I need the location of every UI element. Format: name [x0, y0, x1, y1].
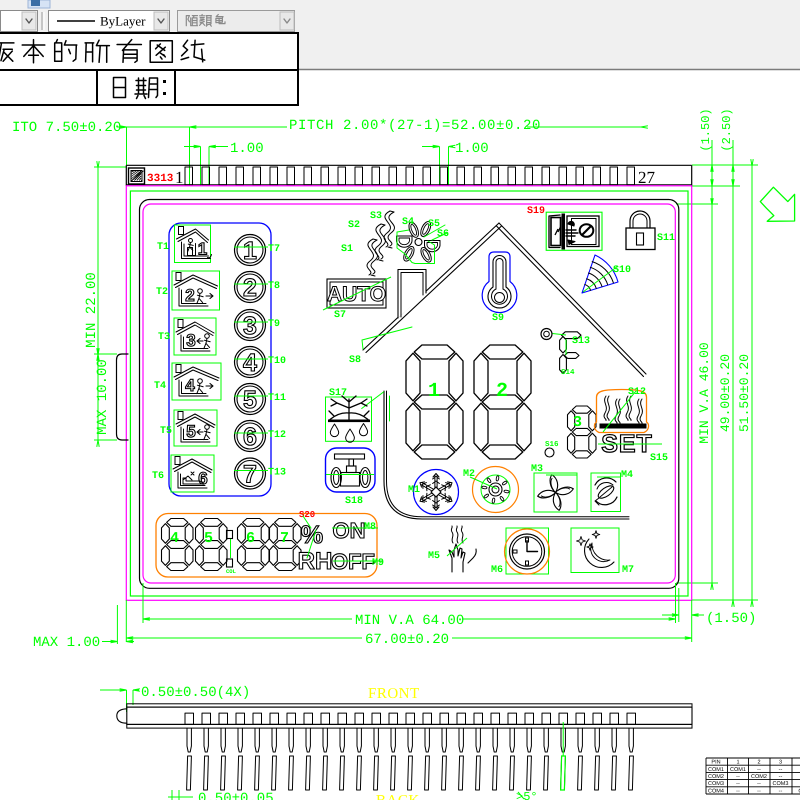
svg-text:S16: S16 [545, 440, 559, 449]
svg-text:51.50±0.20: 51.50±0.20 [737, 354, 752, 432]
svg-text:6: 6 [198, 469, 207, 488]
svg-text:ITO 7.50±0.20: ITO 7.50±0.20 [12, 120, 121, 136]
svg-text:6: 6 [243, 423, 257, 451]
svg-text:COM2: COM2 [708, 774, 724, 780]
svg-text:MIN V.A 64.00: MIN V.A 64.00 [355, 613, 464, 629]
svg-text:S1: S1 [341, 244, 353, 255]
svg-text:--: -- [779, 788, 783, 794]
svg-text:COM2: COM2 [751, 774, 767, 780]
svg-text:S15: S15 [650, 453, 668, 464]
svg-text:1: 1 [428, 380, 440, 403]
svg-text:S12: S12 [628, 387, 646, 398]
svg-text:3: 3 [573, 414, 582, 431]
svg-text:5: 5 [204, 530, 213, 547]
svg-text:4: 4 [243, 349, 257, 377]
svg-text:S19: S19 [527, 206, 545, 217]
svg-text:T2: T2 [156, 287, 168, 298]
svg-text:(2.50): (2.50) [720, 108, 734, 151]
svg-text:S2: S2 [348, 220, 360, 231]
svg-text:T11: T11 [268, 393, 286, 404]
svg-text:T13: T13 [268, 468, 286, 479]
svg-text:--: -- [736, 788, 740, 794]
svg-text:3313: 3313 [147, 173, 174, 185]
svg-text:RH: RH [298, 548, 333, 575]
svg-text:S18: S18 [345, 496, 363, 507]
svg-text:--: -- [779, 774, 783, 780]
svg-text:S9: S9 [492, 313, 504, 324]
svg-text:1: 1 [198, 240, 207, 259]
svg-text:27: 27 [638, 168, 656, 187]
svg-text:COM3: COM3 [773, 781, 789, 787]
svg-text:S14: S14 [561, 368, 575, 377]
svg-text:M3: M3 [531, 464, 543, 475]
svg-text:2: 2 [757, 760, 760, 766]
svg-text:7: 7 [280, 530, 289, 547]
svg-text:T3: T3 [158, 332, 170, 343]
svg-text:5: 5 [186, 422, 195, 441]
svg-text:1: 1 [243, 237, 257, 265]
svg-text:T12: T12 [268, 430, 286, 441]
svg-text:M5: M5 [428, 551, 440, 562]
svg-text:67.00±0.20: 67.00±0.20 [365, 632, 449, 648]
svg-text:BACK: BACK [376, 793, 420, 800]
svg-text:1: 1 [175, 168, 184, 187]
svg-text:4: 4 [170, 530, 179, 547]
svg-text:COM1: COM1 [730, 767, 746, 773]
svg-text:2: 2 [185, 286, 194, 305]
svg-text:T8: T8 [268, 281, 280, 292]
svg-text:4: 4 [185, 376, 195, 395]
svg-text:3: 3 [243, 312, 257, 340]
svg-text:M6: M6 [491, 565, 503, 576]
svg-text:T7: T7 [268, 244, 280, 255]
svg-text:S8: S8 [349, 355, 361, 366]
svg-text:AUTO: AUTO [327, 283, 386, 306]
svg-text:7: 7 [243, 461, 257, 489]
svg-text:S13: S13 [572, 336, 590, 347]
svg-text:0.50±0.50(4X): 0.50±0.50(4X) [141, 685, 250, 701]
svg-text:M1: M1 [408, 485, 420, 496]
svg-text:3: 3 [779, 760, 782, 766]
svg-text:>5°: >5° [516, 790, 538, 800]
svg-text:ON: ON [333, 518, 366, 543]
svg-text:S11: S11 [657, 233, 675, 244]
svg-text:T9: T9 [268, 319, 280, 330]
svg-text:PITCH 2.00*(27-1)=52.00±0.20: PITCH 2.00*(27-1)=52.00±0.20 [289, 118, 541, 134]
svg-text:%: % [301, 521, 323, 549]
svg-text:--: -- [757, 767, 761, 773]
svg-text:3: 3 [186, 331, 195, 350]
svg-text:M7: M7 [622, 565, 634, 576]
svg-text:--: -- [736, 774, 740, 780]
svg-text:T5: T5 [160, 426, 172, 437]
svg-text:--: -- [757, 781, 761, 787]
svg-text:49.00±0.20: 49.00±0.20 [718, 354, 733, 432]
svg-text:6: 6 [246, 530, 255, 547]
svg-text:COM4: COM4 [708, 788, 724, 794]
svg-text:S7: S7 [334, 310, 346, 321]
svg-text:COL: COL [226, 568, 237, 575]
svg-text:PIN: PIN [711, 760, 720, 766]
svg-text:MIN 22.00: MIN 22.00 [84, 272, 100, 348]
svg-text:--: -- [757, 788, 761, 794]
svg-text:2: 2 [243, 274, 257, 302]
svg-text:COM3: COM3 [708, 781, 724, 787]
svg-text:COM1: COM1 [708, 767, 724, 773]
svg-text:MAX 10.00: MAX 10.00 [95, 359, 111, 435]
svg-text:ByLayer: ByLayer [100, 14, 146, 29]
svg-text:S20: S20 [299, 510, 315, 520]
svg-text:M2: M2 [463, 469, 475, 480]
svg-text:(1.50): (1.50) [699, 108, 713, 151]
svg-text:T10: T10 [268, 356, 286, 367]
svg-text:S4: S4 [402, 217, 414, 228]
svg-text:M4: M4 [621, 470, 633, 481]
svg-text:--: -- [779, 767, 783, 773]
svg-text:T1: T1 [157, 242, 169, 253]
svg-text:1.00: 1.00 [230, 141, 264, 157]
svg-text:2: 2 [496, 380, 508, 403]
svg-text:S3: S3 [370, 211, 382, 222]
svg-text:S10: S10 [613, 265, 631, 276]
svg-text:1: 1 [736, 760, 739, 766]
svg-text:FRONT: FRONT [368, 686, 420, 702]
svg-text:(1.50): (1.50) [706, 611, 756, 627]
svg-text:MIN V.A 46.00: MIN V.A 46.00 [697, 342, 712, 443]
svg-text:--: -- [736, 781, 740, 787]
svg-text:S6: S6 [437, 229, 449, 240]
svg-text:M9: M9 [372, 558, 384, 569]
svg-text:S17: S17 [329, 388, 347, 399]
svg-text:T4: T4 [154, 381, 166, 392]
svg-text:MAX 1.00: MAX 1.00 [33, 635, 100, 651]
svg-text:0.50±0.05: 0.50±0.05 [198, 791, 274, 800]
svg-text:T6: T6 [152, 471, 164, 482]
svg-text:5: 5 [243, 386, 257, 414]
svg-text:1.00: 1.00 [455, 141, 489, 157]
